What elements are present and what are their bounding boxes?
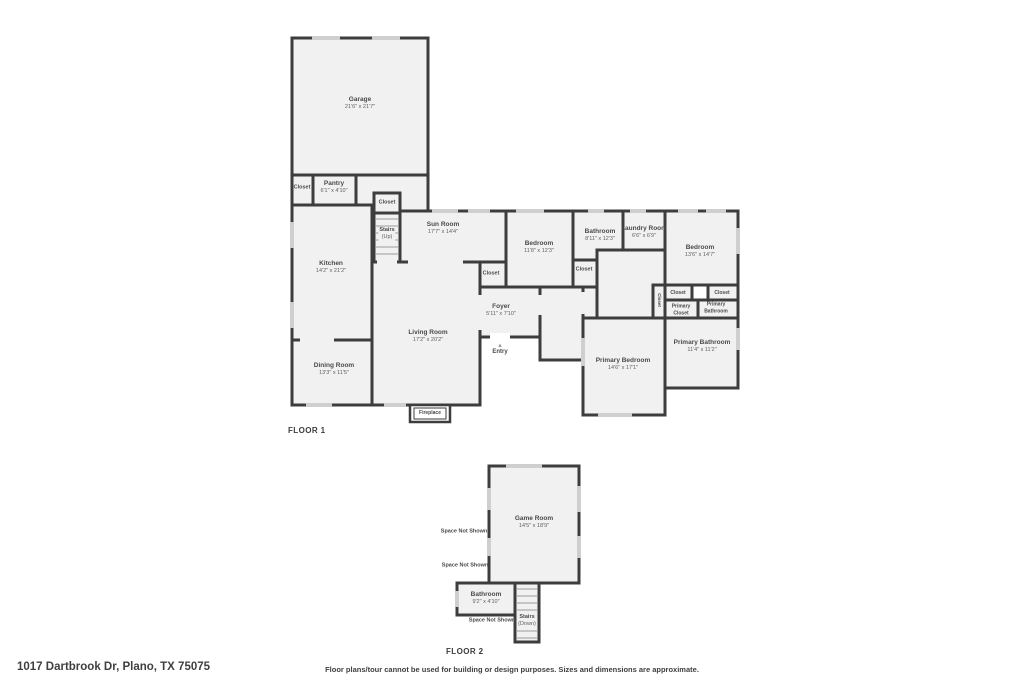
living-room-label: Living Room17'2" x 20'2": [408, 329, 447, 345]
space-not-shown-3: Space Not Shown: [469, 617, 515, 624]
primary-bath-wc-label: PrimaryBathroom: [704, 302, 728, 315]
bedroom-mid-label: Bedroom11'8" x 12'3": [524, 240, 554, 256]
closet-a-label: Closet: [294, 184, 311, 191]
laundry-label: Laundry Room6'6" x 6'9": [621, 225, 667, 241]
stairs-down-label: Stairs(Down): [517, 614, 537, 628]
entry-label: ▲ Entry: [492, 343, 507, 357]
bathroom1-label: Bathroom8'11" x 12'3": [585, 228, 616, 244]
bathroom2-label: Bathroom9'2" x 4'10": [471, 591, 502, 607]
bed-mid-closet-label: Closet: [576, 266, 593, 273]
floor2-tag: FLOOR 2: [446, 647, 483, 656]
dining-room-label: Dining Room13'3" x 11'5": [314, 362, 354, 378]
sun-room-label: Sun Room17'7" x 14'4": [427, 221, 460, 237]
game-room-label: Game Room14'5" x 18'9": [515, 515, 553, 531]
floor1-walls: [292, 38, 738, 415]
closet-b-label: Closet: [670, 290, 685, 297]
hall-main: [540, 287, 583, 360]
foyer-label: Foyer5'11" x 7'10": [486, 303, 516, 319]
primary-closet-label: PrimaryCloset: [672, 304, 691, 317]
sun-closet-label: Closet: [483, 270, 500, 277]
closet-c-label: Closet: [714, 290, 729, 297]
bedroom-right-label: Bedroom13'6" x 14'7": [685, 244, 715, 260]
floor1-tag: FLOOR 1: [288, 426, 325, 435]
kitchen-label: Kitchen14'2" x 21'2": [316, 260, 346, 276]
disclaimer-text: Floor plans/tour cannot be used for buil…: [0, 665, 1024, 674]
space-not-shown-1: Space Not Shown: [441, 528, 487, 535]
primary-bedroom-label: Primary Bedroom14'6" x 17'1": [596, 357, 651, 373]
fireplace-label: Fireplace: [419, 410, 441, 417]
stairs-closet-label: Closet: [379, 199, 396, 206]
floor-plan-walls: [0, 0, 1024, 683]
pantry-label: Pantry6'1" x 4'10": [320, 180, 347, 196]
floor-plan-image: Garage21'6" x 21'7" Closet Pantry6'1" x …: [0, 0, 1024, 683]
closet-vert-label: Closet: [656, 293, 662, 307]
primary-bathroom-label: Primary Bathroom11'4" x 11'2": [674, 339, 731, 355]
stairs-down-room: [515, 583, 539, 642]
stairs-up-label: Stairs(Up): [378, 227, 395, 241]
space-not-shown-2: Space Not Shown: [442, 562, 488, 569]
garage-label: Garage21'6" x 21'7": [345, 96, 375, 112]
